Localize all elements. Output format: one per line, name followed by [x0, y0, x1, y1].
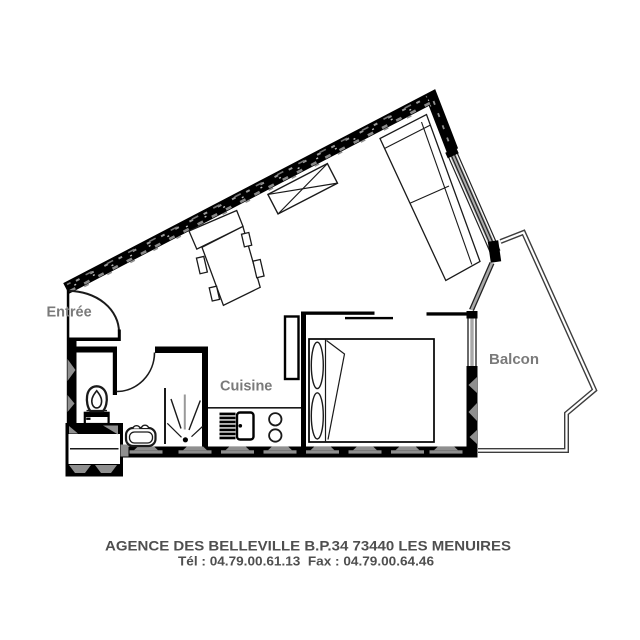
svg-text:AGENCE DES BELLEVILLE B.P.34 7: AGENCE DES BELLEVILLE B.P.34 73440 LES M…	[105, 538, 511, 554]
svg-text:Cuisine: Cuisine	[220, 379, 272, 395]
svg-text:Tél : 04.79.00.61.13 Fax : 04: Tél : 04.79.00.61.13 Fax : 04.79.00.64.4…	[178, 554, 434, 569]
svg-text:Entrée: Entrée	[47, 304, 92, 320]
svg-text:Balcon: Balcon	[489, 351, 539, 368]
